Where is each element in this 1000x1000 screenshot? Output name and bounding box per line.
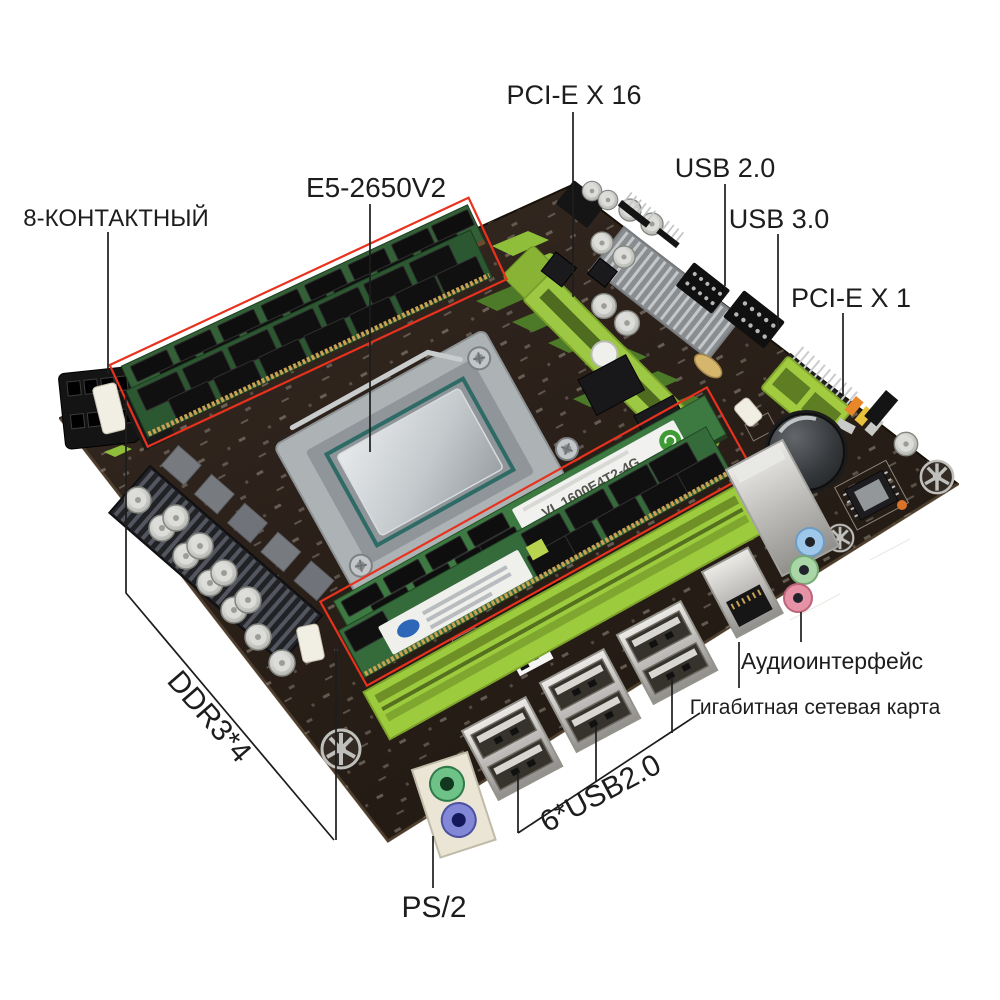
label-pcie-x16: PCI-E X 16 [506, 80, 641, 110]
label-ddr3: DDR3*4 [161, 664, 258, 769]
label-ps2: PS/2 [401, 891, 466, 924]
product-annotation-figure: VL 1600E4T2-4G [0, 0, 1000, 1000]
label-cpu-model: E5-2650V2 [306, 172, 446, 203]
label-8pin: 8-КОНТАКТНЫЙ [23, 204, 208, 232]
motherboard-diagram: VL 1600E4T2-4G [0, 0, 1000, 1000]
capacitor [894, 432, 917, 455]
label-pcie-x1: PCI-E X 1 [791, 283, 911, 313]
label-usb-30: USB 3.0 [729, 204, 830, 234]
label-usb-20: USB 2.0 [675, 153, 776, 183]
smd-component [897, 500, 907, 510]
label-lan: Гигабитная сетевая карта [690, 696, 941, 719]
label-audio: Аудиоинтерфейс [741, 648, 923, 674]
